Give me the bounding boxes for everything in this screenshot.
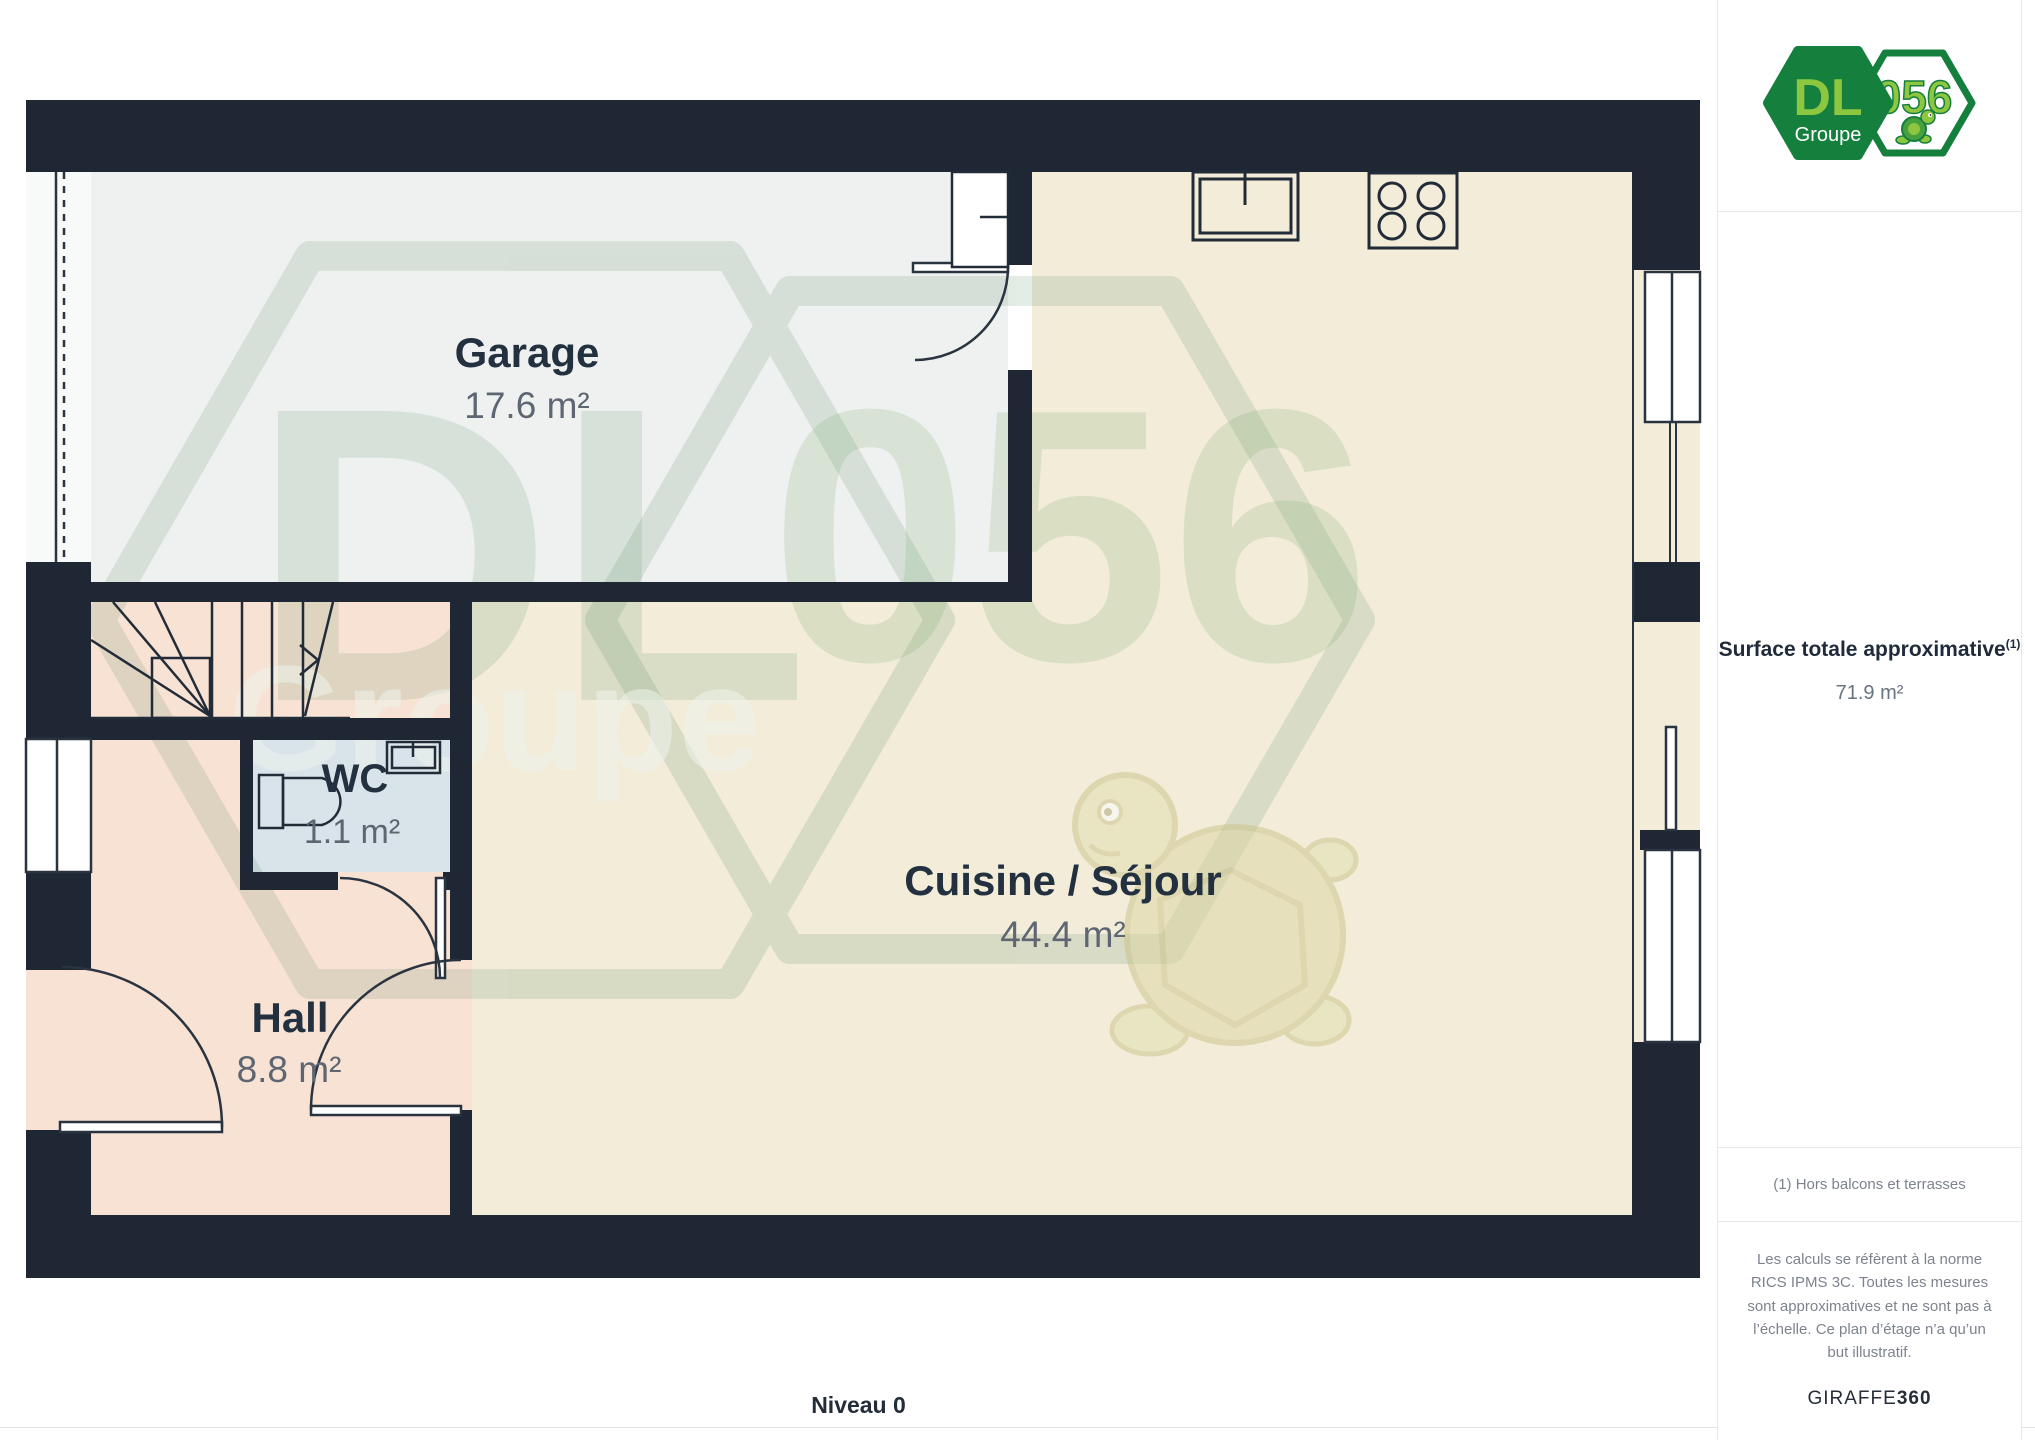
kitchen-area: 44.4 m² [1000,914,1125,955]
wall-right-bottom-corner [1632,1042,1700,1278]
surface-footnote-ref: (1) [2006,637,2021,651]
brand-360: 360 [1897,1388,1932,1409]
brand-giraffe: GIRAFFE [1807,1388,1896,1409]
wall-right-sill [1640,830,1700,850]
french-door-leaf [1666,727,1676,830]
logo-section: 056 DL Groupe [1718,0,2021,212]
garage-label: Garage [455,329,600,376]
legal-section: Les calculs se réfèrent à la norme RICS … [1718,1222,2021,1440]
wall-left-between [26,872,91,970]
wc-area: 1.1 m² [304,813,400,851]
wall-top [26,100,1700,172]
wall-right-top-corner [1632,100,1700,270]
surface-total-title: Surface totale approximative(1) [1718,637,2021,662]
boiler-closet-icon [952,172,1008,267]
footnote-section: (1) Hors balcons et terrasses [1718,1148,2021,1222]
giraffe360-brand: GIRAFFE360 [1742,1388,1997,1410]
wall-garage-kitchen-lower [1008,370,1032,602]
logo-hexagon-dl: DL Groupe [1768,51,1888,155]
wall-wc-left [240,740,253,872]
logo-dl-text: DL [1793,69,1862,127]
surface-total-value: 71.9 m² [1718,682,2021,705]
surface-section: Surface totale approximative(1) 71.9 m² [1718,212,2021,1148]
wall-hall-kitchen-upper [450,602,472,960]
logo-groupe-text: Groupe [1794,124,1861,146]
wall-bottom [26,1215,1700,1278]
disclaimer-text: Les calculs se réfèrent à la norme RICS … [1742,1248,1997,1364]
window-left-hall [26,739,91,872]
garage-door-recess [26,172,91,562]
info-sidebar: 056 DL Groupe [1717,0,2022,1440]
level-label: Niveau 0 [0,1392,1717,1419]
wall-hall-kitchen-lower [450,1110,472,1215]
floorplan-page: DL 056 Groupe [0,0,2035,1440]
window-right-lower [1645,850,1700,1042]
floorplan-svg: DL 056 Groupe [0,0,1717,1440]
hall-label: Hall [251,994,328,1041]
kitchen-label: Cuisine / Séjour [904,857,1221,904]
wall-garage-kitchen-upper [1008,172,1032,265]
wc-label: WC [322,757,389,801]
wall-wc-bottom-right [443,872,472,890]
entrance-recess [26,970,91,1130]
surface-total-title-text: Surface totale approximative [1719,638,2006,661]
wall-right-pier [1632,562,1700,622]
wall-wc-top [240,722,472,740]
dl-groupe-056-logo: 056 DL Groupe [1762,41,1978,171]
hall-area: 8.8 m² [237,1049,342,1090]
wall-wc-bottom-left [240,872,338,890]
window-right-upper [1645,272,1700,422]
wall-garage-bottom [26,582,1032,602]
footnote-text: (1) Hors balcons et terrasses [1773,1176,1966,1193]
watermark-056: 056 [770,335,1371,737]
garage-area: 17.6 m² [464,385,589,426]
floorplan-canvas: DL 056 Groupe [0,0,1717,1440]
